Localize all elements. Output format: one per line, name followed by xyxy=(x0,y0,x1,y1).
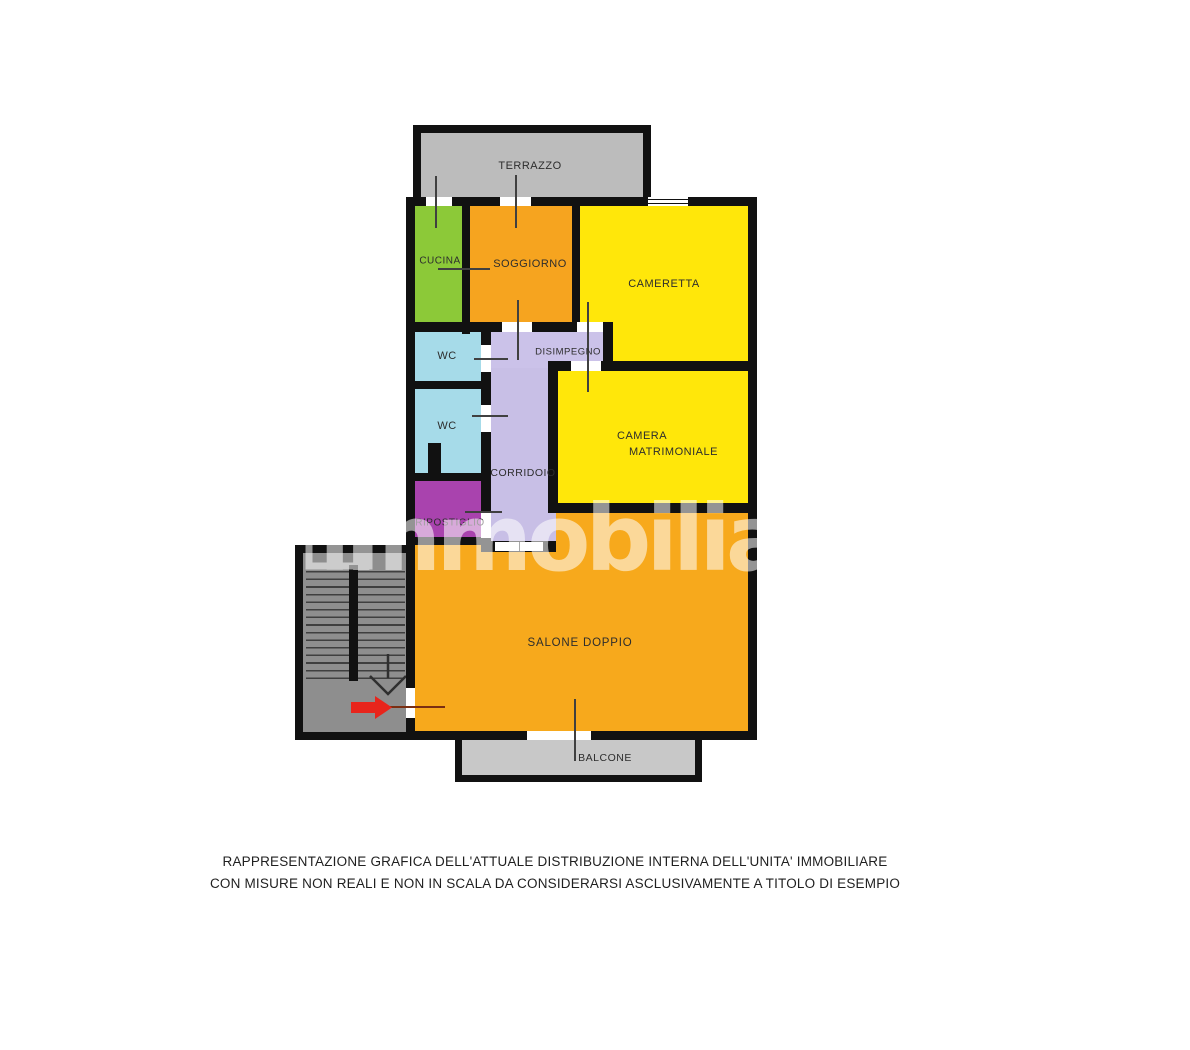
disclaimer: RAPPRESENTAZIONE GRAFICA DELL'ATTUALE DI… xyxy=(0,851,1110,894)
disclaimer-line-2: CON MISURE NON REALI E NON IN SCALA DA C… xyxy=(0,873,1110,895)
door-line xyxy=(438,268,490,270)
floor-plan: TERRAZZO CUCINA SOGGIORNO CAMERETTA WC D… xyxy=(0,0,1190,1050)
entrance-door-line xyxy=(383,706,445,708)
room-label-terrazzo: TERRAZZO xyxy=(498,160,561,172)
room-label-balcone: BALCONE xyxy=(578,752,632,764)
room-label-soggiorno: SOGGIORNO xyxy=(493,258,567,270)
door-line xyxy=(435,176,437,228)
room-label-wc-1: WC xyxy=(437,350,456,362)
room-ripostiglio xyxy=(411,477,487,541)
room-label-ripostiglio: RIPOSTIGLIO xyxy=(415,518,484,529)
entrance-door-opening xyxy=(406,688,415,718)
door-line xyxy=(574,699,576,761)
disclaimer-line-1: RAPPRESENTAZIONE GRAFICA DELL'ATTUALE DI… xyxy=(0,851,1110,873)
wall-segment xyxy=(406,197,415,740)
stairs-direction-arrow-icon xyxy=(366,652,410,700)
room-label-corridoio: CORRIDOIO xyxy=(490,467,555,479)
wall-segment xyxy=(748,197,757,740)
door-opening xyxy=(571,361,601,371)
door-line xyxy=(465,511,502,513)
wall-segment xyxy=(428,443,441,475)
wall-segment xyxy=(572,201,580,332)
room-label-salone: SALONE DOPPIO xyxy=(528,637,633,649)
door-line xyxy=(517,300,519,360)
door-opening xyxy=(577,322,603,332)
entrance-arrow-icon xyxy=(351,702,377,713)
room-label-camera-matrimoniale: CAMERA MATRIMONIALE xyxy=(617,428,718,460)
door-line xyxy=(472,415,508,417)
room-label-cameretta: CAMERETTA xyxy=(628,278,700,290)
door-line xyxy=(515,175,517,228)
wall-segment xyxy=(411,537,487,545)
door-opening xyxy=(481,405,491,432)
wall-segment xyxy=(411,381,487,389)
wall-segment xyxy=(411,473,487,481)
window-glyph-line xyxy=(648,203,688,204)
window-glyph-line xyxy=(648,199,688,200)
wall-segment xyxy=(548,361,558,513)
room-label-wc-2: WC xyxy=(437,420,456,432)
wall-segment xyxy=(548,503,752,513)
room-label-disimpegno: DISIMPEGNO xyxy=(535,347,601,358)
wall-segment xyxy=(406,197,757,206)
door-opening xyxy=(527,731,591,740)
door-line xyxy=(474,358,508,360)
stair-treads xyxy=(306,571,350,681)
room-label-cucina: CUCINA xyxy=(419,256,460,267)
door-line xyxy=(519,542,520,551)
door-opening xyxy=(426,197,452,206)
stair-stringer xyxy=(349,565,358,681)
